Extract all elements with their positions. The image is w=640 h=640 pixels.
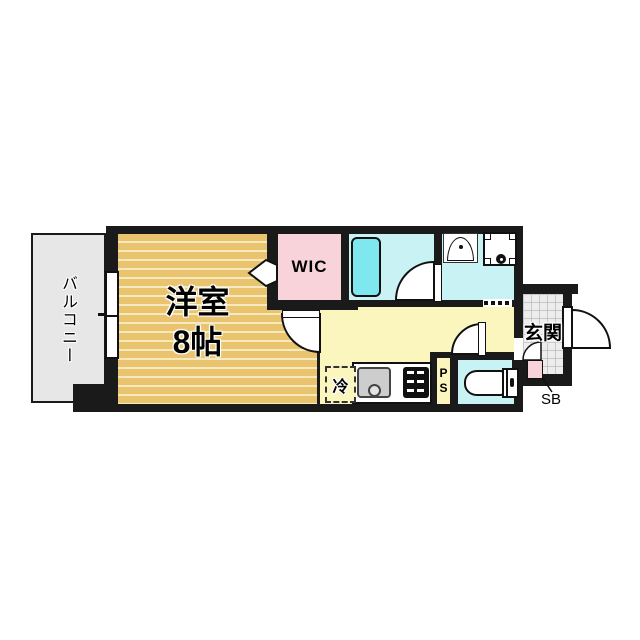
wall: [450, 352, 458, 404]
window-divider: [107, 315, 117, 317]
stove-grate: [407, 371, 414, 394]
faucet-dot: [459, 245, 463, 249]
stove: [403, 367, 429, 398]
wall: [106, 234, 118, 271]
front-door-arc: [572, 310, 610, 348]
pan-corner: [484, 258, 491, 265]
bathroom-door-panel: [434, 264, 442, 302]
wic-label: WIC: [278, 234, 341, 300]
toilet-bowl: [464, 370, 504, 396]
bathtub: [351, 237, 381, 297]
vanity-sink: [443, 233, 478, 263]
tank-knob: [510, 378, 514, 387]
pipe-space-text: PS: [437, 366, 451, 396]
sink-bowl: [447, 237, 474, 261]
stove-grate: [417, 371, 424, 394]
pan-corner: [509, 233, 516, 240]
balcony-text: バルコニー: [55, 275, 79, 365]
wall: [434, 234, 442, 264]
wall: [267, 300, 358, 310]
pipe-space-label: PS: [437, 358, 450, 404]
western-room-door-panel: [282, 310, 320, 318]
kitchen-faucet: [368, 384, 381, 397]
washing-machine-pan: [483, 232, 517, 266]
toilet-door-panel: [478, 322, 486, 356]
pan-corner: [484, 233, 491, 240]
tank-line: [506, 370, 508, 396]
refrigerator-label: 冷: [332, 373, 348, 397]
drain-icon: [496, 254, 506, 264]
front-door-panel: [562, 306, 573, 349]
wic-text: WIC: [291, 257, 327, 277]
entrance-label: 玄関: [523, 294, 563, 368]
balcony-window: [105, 271, 119, 359]
western-room-name: 洋室: [165, 282, 229, 322]
floor-plan: 冷 洋室 8帖 WIC 玄関 バルコニー PS SB: [0, 0, 640, 640]
wall: [73, 404, 523, 412]
shoe-box-label: SB: [537, 390, 565, 408]
toilet-tank: [502, 368, 519, 398]
balcony-label: バルコニー: [52, 240, 82, 400]
pan-corner: [509, 258, 516, 265]
western-room-size: 8帖: [173, 322, 223, 362]
wall: [317, 350, 320, 405]
refrigerator-space: 冷: [325, 366, 356, 403]
entrance-text: 玄関: [524, 318, 562, 345]
western-room-label: 洋室 8帖: [125, 280, 270, 364]
shoe-box-text: SB: [541, 391, 561, 408]
window-tick: [98, 313, 106, 316]
wall: [341, 234, 349, 300]
